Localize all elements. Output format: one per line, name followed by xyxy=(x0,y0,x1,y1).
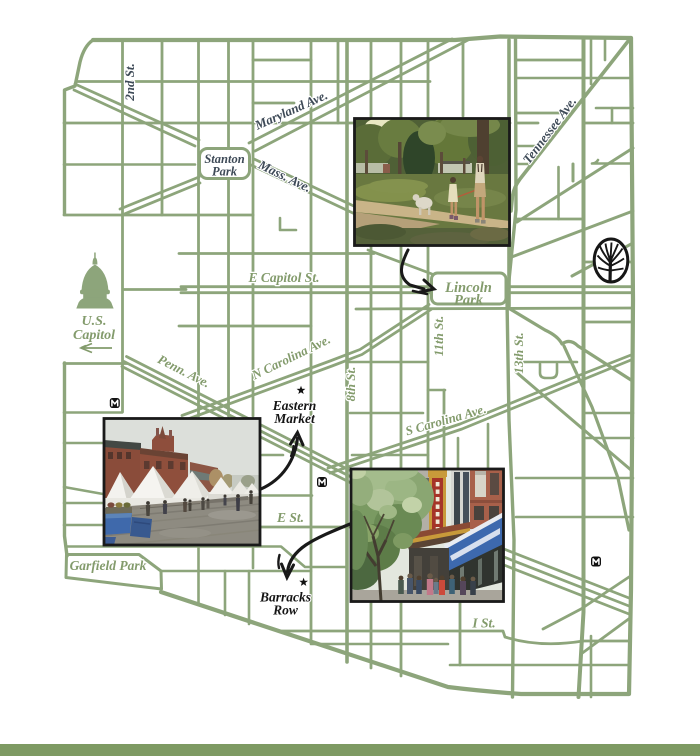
svg-text:Row: Row xyxy=(272,603,299,618)
svg-text:Garfield Park: Garfield Park xyxy=(70,558,147,573)
svg-text:11th St.: 11th St. xyxy=(431,316,446,356)
svg-text:2nd St.: 2nd St. xyxy=(122,63,137,102)
svg-text:U.S.: U.S. xyxy=(82,314,107,329)
svg-text:E Capitol St.: E Capitol St. xyxy=(248,270,320,285)
svg-text:Capitol: Capitol xyxy=(73,328,115,343)
svg-text:Park: Park xyxy=(212,165,238,179)
svg-text:8th St.: 8th St. xyxy=(343,367,358,402)
svg-text:Market: Market xyxy=(273,411,316,426)
svg-text:Park: Park xyxy=(454,293,484,309)
svg-text:I St.: I St. xyxy=(471,616,495,631)
svg-text:13th St.: 13th St. xyxy=(511,332,526,373)
svg-text:E St.: E St. xyxy=(276,510,304,525)
